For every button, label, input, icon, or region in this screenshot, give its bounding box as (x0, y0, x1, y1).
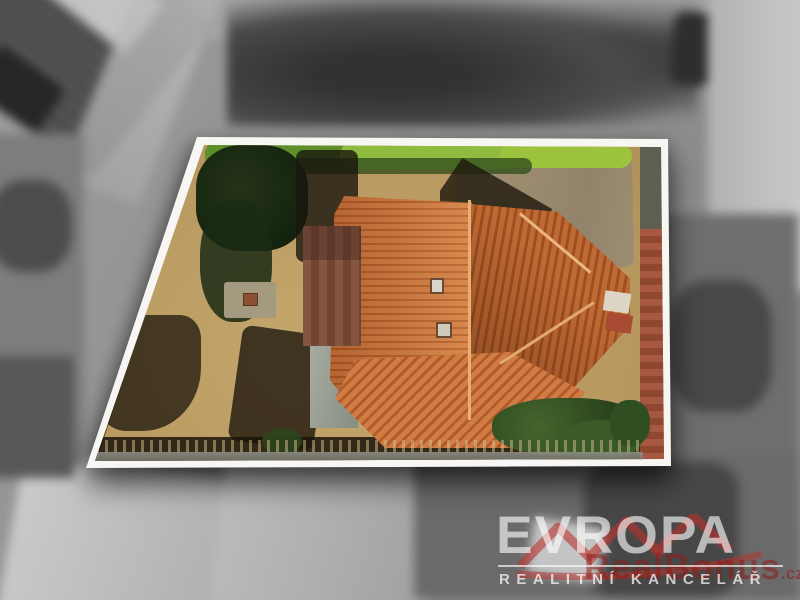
shed-roof-red (605, 312, 633, 333)
garage-roof-upper (303, 226, 361, 260)
agency-logo-text: EVROPA (496, 504, 736, 565)
agency-logo-divider (498, 565, 783, 567)
shed-roof-white (603, 290, 632, 313)
roof-ridge (468, 200, 471, 420)
listing-photo: RealBonus.cz EVROPA REALITNÍ KANCELÁŘ (0, 0, 800, 600)
neighbor-wall (640, 147, 662, 229)
photo-watermark-suffix: .cz (781, 564, 800, 583)
chimney-1 (430, 278, 444, 294)
chimney-2 (436, 322, 452, 338)
agency-tagline: REALITNÍ KANCELÁŘ (499, 571, 767, 588)
well-hatch (243, 293, 258, 306)
